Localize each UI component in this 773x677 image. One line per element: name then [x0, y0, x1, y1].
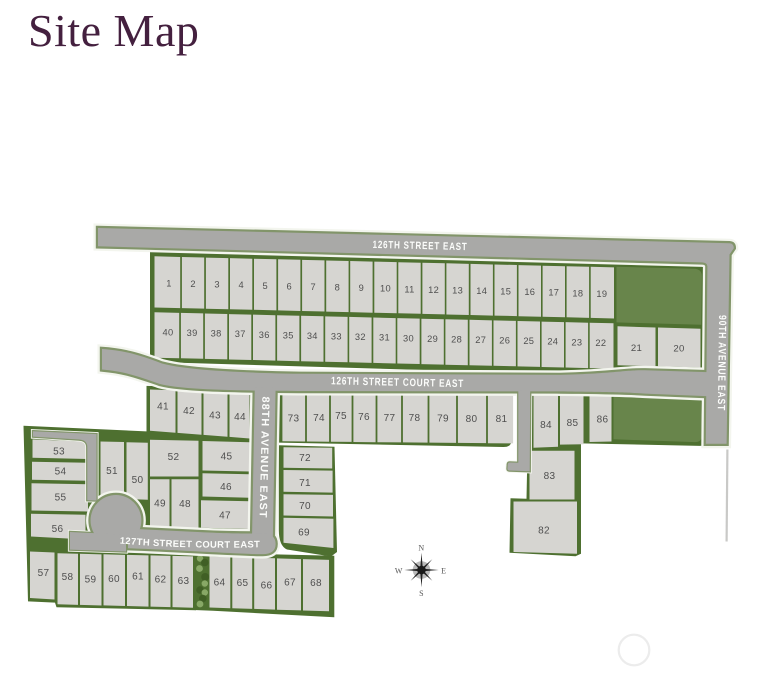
- svg-text:37: 37: [235, 329, 246, 339]
- svg-text:17: 17: [548, 288, 559, 298]
- svg-text:27: 27: [475, 335, 486, 345]
- svg-text:60: 60: [108, 574, 120, 585]
- svg-text:86: 86: [597, 414, 609, 425]
- svg-text:72: 72: [299, 453, 311, 464]
- svg-text:S: S: [419, 589, 423, 598]
- svg-text:51: 51: [106, 466, 118, 477]
- svg-text:32: 32: [355, 332, 366, 342]
- svg-text:12: 12: [428, 285, 439, 295]
- svg-text:75: 75: [335, 411, 347, 422]
- svg-text:36: 36: [259, 330, 270, 340]
- svg-text:15: 15: [500, 287, 511, 297]
- svg-text:1: 1: [166, 279, 171, 289]
- svg-text:24: 24: [547, 337, 558, 347]
- svg-text:6: 6: [286, 281, 291, 291]
- svg-text:29: 29: [427, 334, 438, 344]
- svg-text:55: 55: [55, 492, 67, 503]
- svg-text:40: 40: [163, 328, 174, 338]
- svg-text:41: 41: [157, 401, 169, 412]
- svg-text:62: 62: [155, 574, 167, 585]
- svg-text:9: 9: [359, 283, 364, 293]
- svg-text:126TH STREET EAST: 126TH STREET EAST: [372, 239, 467, 253]
- svg-text:19: 19: [596, 289, 607, 299]
- svg-text:78: 78: [409, 413, 421, 424]
- svg-text:E: E: [441, 567, 446, 576]
- svg-text:76: 76: [358, 412, 370, 423]
- svg-text:46: 46: [220, 482, 232, 493]
- svg-text:58: 58: [62, 572, 74, 583]
- svg-text:81: 81: [496, 414, 508, 425]
- svg-text:35: 35: [283, 330, 294, 340]
- svg-text:44: 44: [234, 412, 246, 423]
- svg-text:68: 68: [310, 578, 322, 589]
- svg-text:30: 30: [403, 333, 414, 343]
- svg-text:74: 74: [313, 413, 325, 424]
- svg-text:47: 47: [219, 510, 231, 521]
- svg-text:90TH AVENUE EAST: 90TH AVENUE EAST: [715, 315, 728, 411]
- svg-text:26: 26: [499, 336, 510, 346]
- svg-text:73: 73: [288, 413, 300, 424]
- svg-text:80: 80: [466, 414, 478, 425]
- svg-text:31: 31: [379, 333, 390, 343]
- svg-text:71: 71: [299, 478, 311, 489]
- svg-text:61: 61: [132, 571, 144, 582]
- svg-text:4: 4: [238, 280, 243, 290]
- svg-text:64: 64: [214, 577, 226, 588]
- svg-text:59: 59: [85, 574, 97, 585]
- svg-text:56: 56: [52, 524, 64, 535]
- svg-text:14: 14: [476, 286, 487, 296]
- svg-text:W: W: [395, 567, 403, 576]
- svg-text:50: 50: [132, 475, 144, 486]
- svg-text:2: 2: [190, 279, 195, 289]
- svg-text:66: 66: [261, 580, 273, 591]
- svg-text:84: 84: [540, 420, 552, 431]
- svg-text:53: 53: [53, 446, 65, 457]
- svg-text:34: 34: [307, 331, 318, 341]
- svg-text:25: 25: [523, 336, 534, 346]
- svg-text:8: 8: [335, 283, 340, 293]
- svg-text:10: 10: [380, 284, 391, 294]
- svg-text:39: 39: [187, 328, 198, 338]
- svg-text:77: 77: [384, 413, 396, 424]
- svg-text:13: 13: [452, 285, 463, 295]
- svg-text:52: 52: [168, 452, 180, 463]
- svg-text:38: 38: [211, 329, 222, 339]
- svg-text:57: 57: [38, 568, 50, 579]
- svg-text:33: 33: [331, 332, 342, 342]
- svg-text:22: 22: [595, 338, 606, 348]
- svg-text:16: 16: [524, 287, 535, 297]
- svg-text:23: 23: [571, 337, 582, 347]
- svg-text:83: 83: [544, 471, 556, 482]
- svg-text:7: 7: [311, 282, 316, 292]
- svg-text:67: 67: [284, 577, 296, 588]
- svg-text:85: 85: [567, 418, 579, 429]
- svg-text:69: 69: [298, 527, 310, 538]
- svg-text:43: 43: [209, 411, 221, 422]
- svg-text:11: 11: [404, 284, 414, 294]
- svg-text:21: 21: [631, 343, 642, 354]
- svg-text:5: 5: [262, 281, 267, 291]
- svg-text:54: 54: [55, 466, 67, 477]
- svg-text:82: 82: [538, 525, 550, 536]
- svg-text:42: 42: [183, 406, 195, 417]
- svg-text:28: 28: [451, 334, 462, 344]
- svg-text:79: 79: [437, 413, 449, 424]
- svg-text:3: 3: [214, 280, 219, 290]
- svg-text:20: 20: [673, 343, 684, 354]
- svg-text:N: N: [418, 543, 424, 552]
- svg-text:49: 49: [154, 498, 166, 509]
- svg-text:45: 45: [221, 451, 233, 462]
- svg-text:18: 18: [572, 288, 583, 298]
- svg-text:70: 70: [299, 501, 311, 512]
- svg-text:63: 63: [178, 576, 190, 587]
- svg-text:65: 65: [237, 578, 249, 589]
- svg-text:48: 48: [179, 499, 191, 510]
